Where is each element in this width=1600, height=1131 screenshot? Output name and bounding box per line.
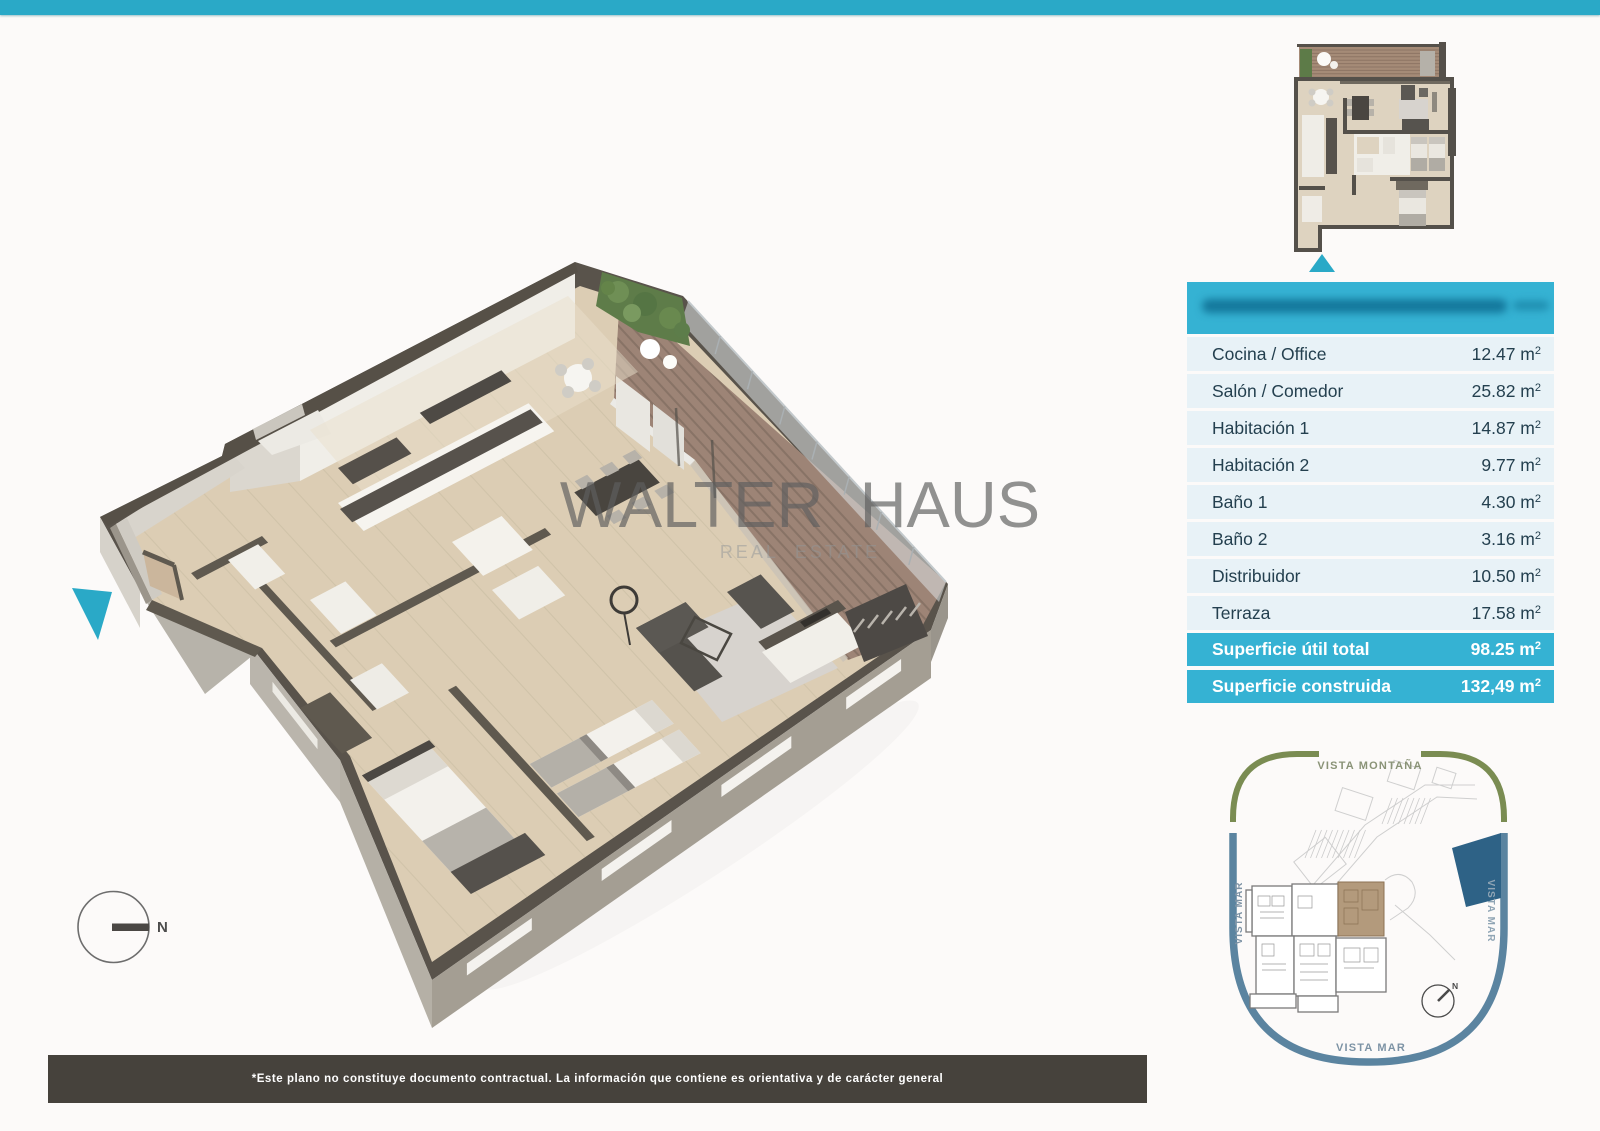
svg-text:N: N (1452, 981, 1458, 991)
svg-text:VISTA MONTAÑA: VISTA MONTAÑA (1317, 759, 1422, 772)
svg-text:VISTA MAR: VISTA MAR (1336, 1042, 1406, 1054)
svg-text:VISTA MAR: VISTA MAR (1234, 882, 1245, 945)
svg-text:VISTA MAR: VISTA MAR (1485, 880, 1496, 943)
